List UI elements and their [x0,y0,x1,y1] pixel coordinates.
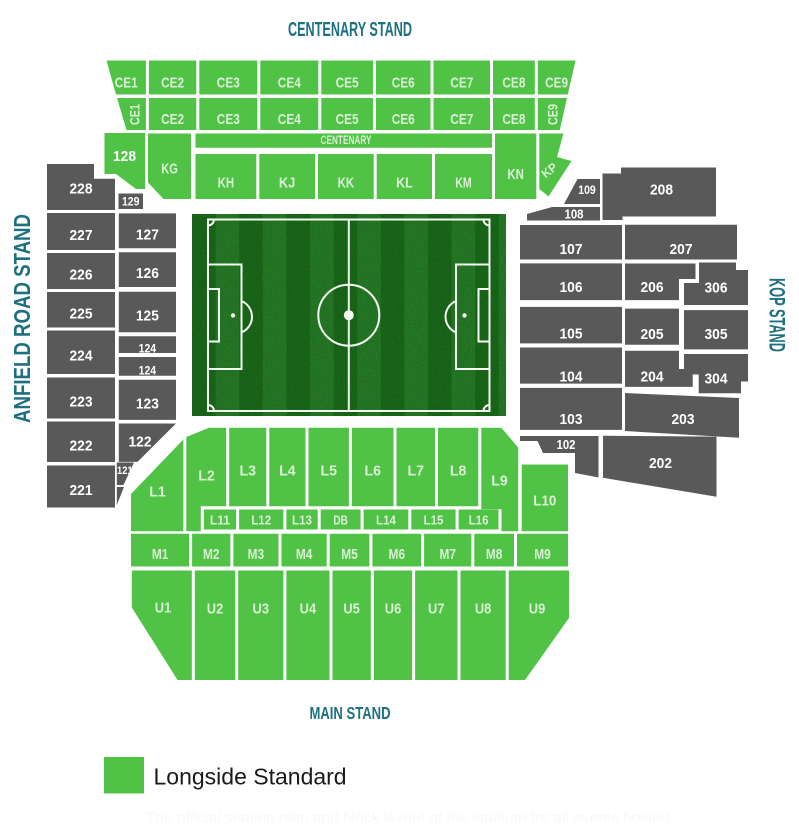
svg-text:KM: KM [455,175,472,192]
svg-text:207: 207 [670,241,693,258]
svg-text:CE3: CE3 [217,75,240,92]
svg-text:226: 226 [70,267,93,284]
svg-text:109: 109 [578,183,596,197]
svg-text:L5: L5 [320,463,337,480]
svg-text:U9: U9 [529,601,546,618]
svg-text:M8: M8 [486,546,503,563]
svg-text:225: 225 [70,305,93,322]
svg-text:KL: KL [396,175,413,192]
svg-text:127: 127 [136,226,159,243]
svg-text:CE9: CE9 [545,104,561,125]
svg-text:223: 223 [70,394,93,411]
svg-text:122: 122 [129,434,152,451]
svg-text:M9: M9 [534,546,551,563]
svg-text:104: 104 [560,369,584,386]
svg-text:U5: U5 [343,601,360,618]
svg-text:202: 202 [649,455,672,472]
svg-text:124: 124 [139,363,157,377]
svg-text:206: 206 [641,279,664,296]
svg-text:L16: L16 [469,513,489,527]
svg-text:CE2: CE2 [161,111,184,128]
svg-text:121: 121 [117,465,133,477]
svg-text:305: 305 [705,326,728,343]
svg-text:203: 203 [672,411,695,428]
svg-text:DB: DB [333,513,348,527]
svg-text:L13: L13 [292,513,312,527]
svg-text:L15: L15 [424,513,444,527]
svg-text:KK: KK [338,175,355,192]
svg-text:L4: L4 [279,463,296,480]
svg-text:126: 126 [136,265,159,282]
svg-text:123: 123 [136,395,159,412]
svg-text:M1: M1 [152,546,169,563]
svg-text:124: 124 [139,342,157,356]
svg-text:L11: L11 [210,513,230,527]
svg-text:CE8: CE8 [502,111,525,128]
svg-text:CE5: CE5 [336,111,359,128]
svg-text:L9: L9 [491,473,508,490]
svg-text:CE7: CE7 [450,111,473,128]
svg-text:304: 304 [705,371,729,388]
svg-text:L3: L3 [240,463,257,480]
svg-text:L6: L6 [364,463,381,480]
svg-text:125: 125 [136,307,159,324]
svg-text:M3: M3 [248,546,265,563]
svg-text:129: 129 [122,195,140,209]
svg-text:221: 221 [70,482,93,499]
svg-text:ANFIELD ROAD STAND: ANFIELD ROAD STAND [9,214,35,423]
svg-text:L14: L14 [376,513,396,527]
svg-text:228: 228 [70,181,93,198]
svg-text:U2: U2 [207,601,224,618]
svg-text:M4: M4 [296,546,313,563]
svg-text:U7: U7 [428,601,445,618]
svg-text:128: 128 [113,148,136,165]
svg-text:224: 224 [70,348,94,365]
svg-text:CE4: CE4 [278,75,302,92]
svg-text:L2: L2 [198,468,215,485]
svg-text:102: 102 [557,437,576,452]
svg-text:CE9: CE9 [545,75,568,92]
svg-text:U6: U6 [385,601,402,618]
svg-text:CENTENARY STAND: CENTENARY STAND [288,19,412,41]
svg-text:L8: L8 [450,463,467,480]
svg-text:KH: KH [218,175,235,192]
svg-text:106: 106 [560,279,583,296]
svg-text:204: 204 [641,369,665,386]
svg-text:CENTENARY: CENTENARY [321,135,372,147]
svg-text:U3: U3 [253,601,270,618]
svg-text:108: 108 [565,207,584,222]
svg-text:MAIN STAND: MAIN STAND [310,703,391,723]
svg-text:CE8: CE8 [502,75,525,92]
svg-text:M5: M5 [341,546,358,563]
svg-text:227: 227 [70,227,93,244]
svg-text:103: 103 [560,411,583,428]
svg-text:CE5: CE5 [336,75,359,92]
svg-text:KN: KN [507,166,524,183]
svg-text:208: 208 [650,182,673,199]
svg-text:M6: M6 [389,546,406,563]
svg-text:CE2: CE2 [161,75,184,92]
svg-text:L12: L12 [251,513,271,527]
svg-text:CE1: CE1 [127,104,143,125]
svg-text:CE1: CE1 [115,75,138,92]
svg-text:U4: U4 [300,601,317,618]
svg-text:CE6: CE6 [392,75,415,92]
svg-text:105: 105 [560,326,583,343]
svg-text:Longside Standard: Longside Standard [154,764,347,790]
svg-text:U1: U1 [155,600,172,617]
svg-text:CE4: CE4 [278,111,302,128]
svg-text:107: 107 [560,241,583,258]
svg-text:205: 205 [641,326,664,343]
svg-text:The official seating plan and: The official seating plan and block layo… [146,810,670,822]
svg-text:KOP STAND: KOP STAND [765,278,790,352]
svg-text:222: 222 [70,437,93,454]
svg-text:M2: M2 [203,546,220,563]
svg-text:306: 306 [705,280,728,297]
svg-text:KJ: KJ [279,175,296,192]
svg-text:KG: KG [161,161,178,178]
svg-text:L7: L7 [408,463,425,480]
svg-text:CE3: CE3 [217,111,240,128]
svg-text:L1: L1 [149,484,166,501]
svg-text:L10: L10 [533,493,556,510]
svg-text:M7: M7 [439,546,456,563]
svg-text:CE6: CE6 [392,111,415,128]
svg-text:CE7: CE7 [450,75,473,92]
svg-text:U8: U8 [475,601,492,618]
